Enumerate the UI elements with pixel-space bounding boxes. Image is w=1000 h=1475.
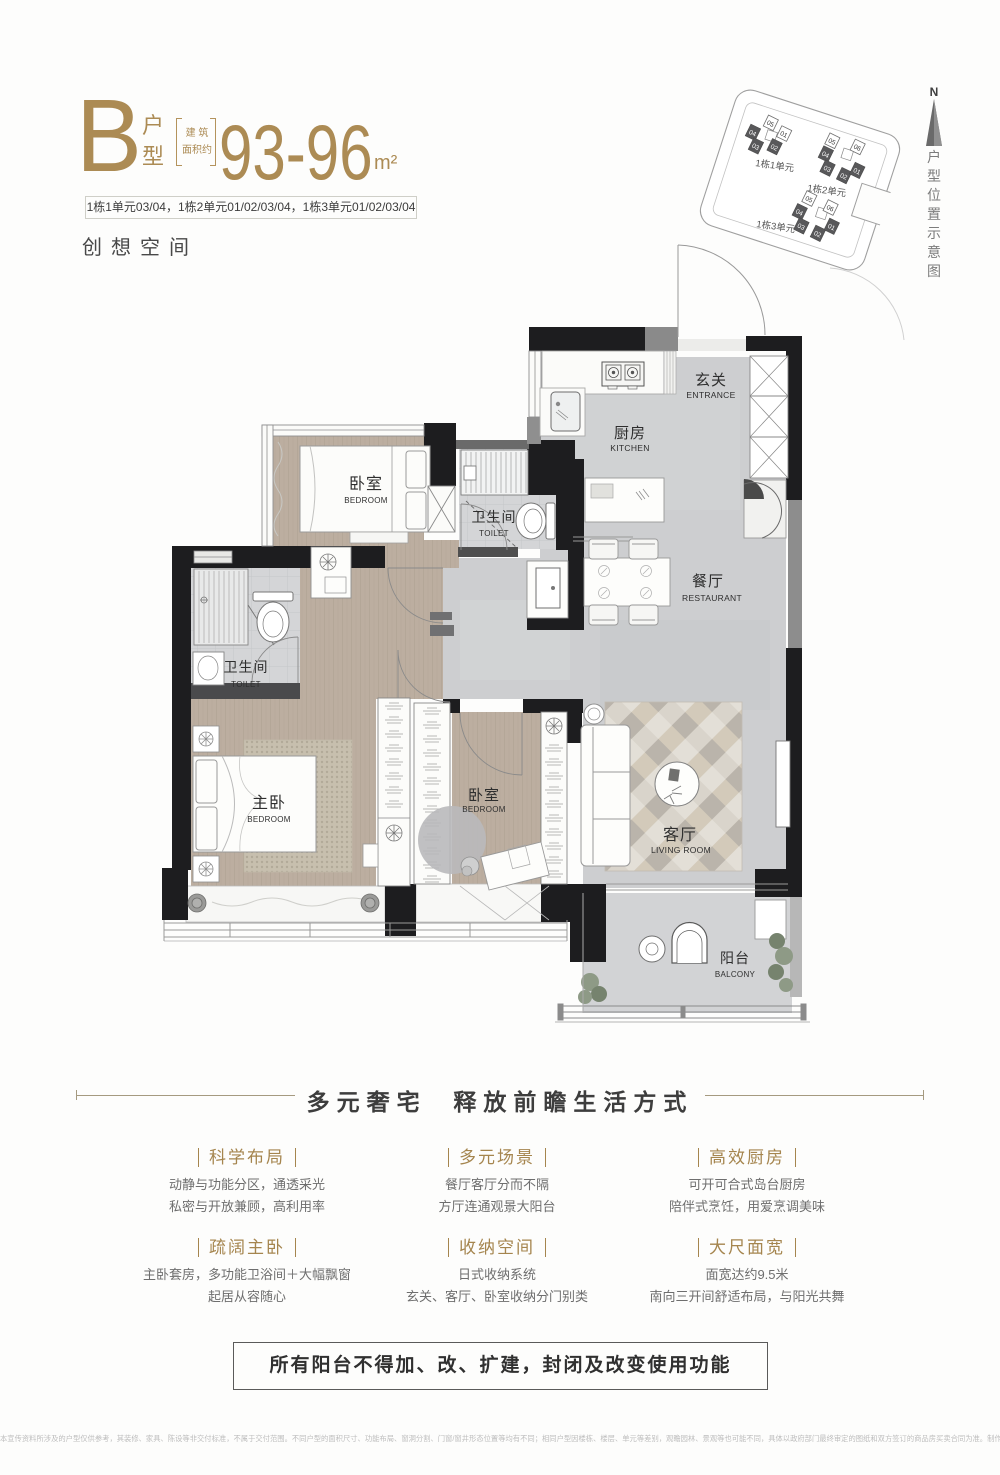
svg-text:ENTRANCE: ENTRANCE (686, 390, 735, 400)
svg-text:意: 意 (927, 244, 941, 260)
svg-text:TOILET: TOILET (231, 680, 261, 689)
svg-text:RESTAURANT: RESTAURANT (682, 593, 742, 603)
svg-text:卧室: 卧室 (349, 475, 383, 493)
svg-text:TOILET: TOILET (479, 529, 509, 538)
svg-text:BEDROOM: BEDROOM (247, 815, 290, 824)
svg-text:N: N (930, 85, 939, 99)
svg-text:客厅: 客厅 (663, 826, 697, 844)
svg-text:卧室: 卧室 (468, 787, 500, 804)
svg-text:示: 示 (927, 225, 941, 241)
svg-text:型: 型 (927, 168, 941, 184)
svg-text:餐厅: 餐厅 (692, 573, 724, 590)
svg-text:BEDROOM: BEDROOM (462, 805, 505, 814)
svg-text:玄关: 玄关 (695, 372, 727, 389)
svg-text:户: 户 (927, 149, 941, 165)
svg-text:BALCONY: BALCONY (715, 970, 756, 979)
svg-text:卫生间: 卫生间 (472, 509, 517, 525)
svg-text:阳台: 阳台 (720, 950, 750, 966)
svg-text:BEDROOM: BEDROOM (344, 496, 387, 505)
svg-text:厨房: 厨房 (614, 425, 646, 442)
svg-text:KITCHEN: KITCHEN (610, 443, 649, 453)
svg-text:主卧: 主卧 (252, 794, 286, 812)
svg-text:LIVING ROOM: LIVING ROOM (651, 845, 711, 855)
svg-text:置: 置 (927, 206, 941, 222)
svg-text:位: 位 (927, 187, 941, 203)
svg-text:卫生间: 卫生间 (224, 659, 269, 675)
svg-text:图: 图 (927, 263, 941, 279)
